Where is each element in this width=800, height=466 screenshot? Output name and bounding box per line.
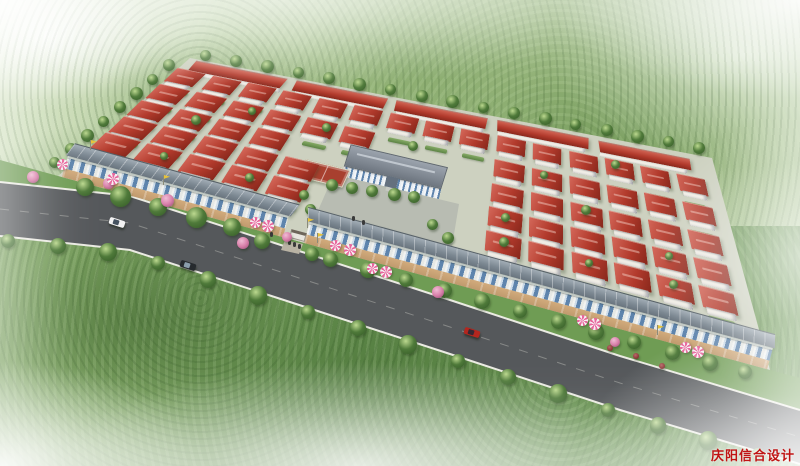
plaza-tree bbox=[366, 185, 378, 197]
street-tree bbox=[513, 304, 527, 318]
street-tree bbox=[702, 355, 718, 371]
street-tree bbox=[110, 186, 131, 207]
person bbox=[362, 220, 365, 225]
pennant-flag bbox=[317, 233, 325, 243]
street-tree bbox=[223, 218, 241, 236]
roadside-tree bbox=[350, 320, 366, 336]
tree bbox=[353, 78, 366, 91]
house bbox=[644, 192, 679, 222]
roadside-tree bbox=[399, 335, 417, 353]
roadside-tree bbox=[500, 369, 516, 385]
blossom-tree bbox=[432, 286, 444, 298]
blossom-tree bbox=[27, 171, 39, 183]
roadside-tree bbox=[601, 403, 615, 417]
tree bbox=[446, 95, 459, 108]
flag-pole bbox=[307, 218, 308, 228]
tree bbox=[385, 84, 396, 95]
parasol-umbrella bbox=[367, 263, 378, 274]
parasol-umbrella bbox=[692, 346, 704, 358]
parasol-umbrella bbox=[589, 318, 601, 330]
courtyard-hedge bbox=[387, 137, 410, 146]
tree bbox=[130, 87, 143, 100]
tree bbox=[570, 119, 581, 130]
street-tree bbox=[627, 335, 641, 349]
pennant-flag bbox=[163, 175, 171, 185]
car-windshield bbox=[467, 329, 474, 336]
plaza-tree bbox=[326, 179, 338, 191]
tree bbox=[245, 173, 254, 182]
tree bbox=[585, 259, 593, 267]
pennant-flag bbox=[90, 140, 98, 150]
roadside-tree bbox=[451, 354, 465, 368]
person bbox=[298, 244, 301, 249]
roadside-tree bbox=[650, 417, 666, 433]
tree bbox=[693, 142, 705, 154]
house bbox=[496, 135, 526, 162]
aerial-rendering-scene: 庆阳信合设计 bbox=[0, 0, 800, 466]
blossom-tree bbox=[237, 237, 249, 249]
tree bbox=[508, 107, 520, 119]
person bbox=[270, 232, 273, 237]
house bbox=[682, 201, 718, 232]
tree bbox=[230, 55, 242, 67]
street-tree bbox=[551, 314, 566, 329]
red-shrub bbox=[607, 345, 613, 351]
tree bbox=[631, 130, 644, 143]
blossom-tree bbox=[161, 194, 174, 207]
car-windshield bbox=[183, 262, 190, 269]
red-car bbox=[463, 327, 480, 339]
tree bbox=[501, 213, 510, 222]
parasol-umbrella bbox=[680, 342, 691, 353]
plaza-tree bbox=[442, 232, 454, 244]
street-tree bbox=[474, 293, 490, 309]
plaza-tree bbox=[346, 182, 358, 194]
house bbox=[458, 128, 490, 154]
tree bbox=[499, 237, 509, 247]
flag-pole bbox=[317, 233, 318, 243]
tree bbox=[478, 102, 489, 113]
tree bbox=[323, 72, 335, 84]
car-windshield bbox=[112, 219, 119, 226]
house bbox=[384, 112, 419, 138]
tree bbox=[147, 74, 158, 85]
parasol-umbrella bbox=[262, 220, 274, 232]
parasol-umbrella bbox=[250, 217, 261, 228]
flag-pennant bbox=[658, 325, 664, 330]
street-tree bbox=[254, 233, 270, 249]
plaza-tree bbox=[388, 188, 401, 201]
roadside-tree bbox=[200, 271, 216, 287]
person bbox=[352, 216, 355, 221]
roadside-tree bbox=[99, 243, 117, 261]
tree bbox=[408, 141, 418, 151]
parasol-umbrella bbox=[577, 315, 588, 326]
red-shrub bbox=[659, 363, 665, 369]
tree bbox=[601, 124, 613, 136]
roadside-tree bbox=[151, 256, 165, 270]
street-tree bbox=[186, 207, 207, 228]
street-tree bbox=[76, 178, 94, 196]
flag-pole bbox=[90, 140, 91, 150]
flag-pennant bbox=[91, 140, 97, 145]
tree bbox=[293, 67, 304, 78]
flag-pennant bbox=[318, 233, 324, 238]
flag-pennant bbox=[164, 175, 170, 180]
house bbox=[569, 150, 599, 177]
parasol-umbrella bbox=[107, 173, 119, 185]
street-tree bbox=[665, 345, 680, 360]
dark-car bbox=[179, 260, 196, 272]
roadside-tree bbox=[1, 234, 15, 248]
watermark-text: 庆阳信合设计 bbox=[711, 445, 795, 464]
parasol-umbrella bbox=[380, 266, 392, 278]
parasol-umbrella bbox=[344, 244, 356, 256]
plaza-tree bbox=[408, 191, 420, 203]
plaza-tree bbox=[427, 219, 438, 230]
buildings-and-landscape bbox=[0, 0, 800, 466]
house bbox=[569, 175, 601, 205]
roadside-tree bbox=[549, 384, 567, 402]
street-tree bbox=[323, 252, 338, 267]
tree bbox=[200, 50, 211, 61]
house bbox=[676, 173, 710, 201]
flag-pole bbox=[657, 325, 658, 335]
street-tree bbox=[399, 273, 413, 287]
tree bbox=[539, 112, 552, 125]
roadside-tree bbox=[301, 305, 315, 319]
tree bbox=[663, 136, 674, 147]
street-tree bbox=[305, 247, 319, 261]
tree bbox=[611, 160, 620, 169]
roadside-tree bbox=[249, 286, 267, 304]
street-tree bbox=[738, 365, 752, 379]
tree bbox=[98, 116, 109, 127]
tree bbox=[416, 90, 428, 102]
pennant-flag bbox=[307, 218, 315, 228]
tree bbox=[114, 101, 126, 113]
tree bbox=[163, 59, 175, 71]
flag-pennant bbox=[308, 218, 314, 223]
roadside-tree bbox=[50, 238, 66, 254]
tree bbox=[322, 123, 331, 132]
person bbox=[293, 242, 296, 247]
courtyard-hedge bbox=[424, 145, 447, 154]
tree bbox=[248, 107, 256, 115]
tree bbox=[261, 60, 274, 73]
parasol-umbrella bbox=[330, 240, 341, 251]
parasol-umbrella bbox=[57, 159, 68, 170]
blossom-tree bbox=[282, 232, 292, 242]
house bbox=[607, 184, 640, 214]
courtyard-hedge bbox=[462, 153, 485, 162]
plaza-tree bbox=[299, 190, 309, 200]
flag-pole bbox=[163, 175, 164, 185]
red-shrub bbox=[633, 353, 639, 359]
pennant-flag bbox=[657, 325, 665, 335]
white-car bbox=[108, 217, 125, 229]
